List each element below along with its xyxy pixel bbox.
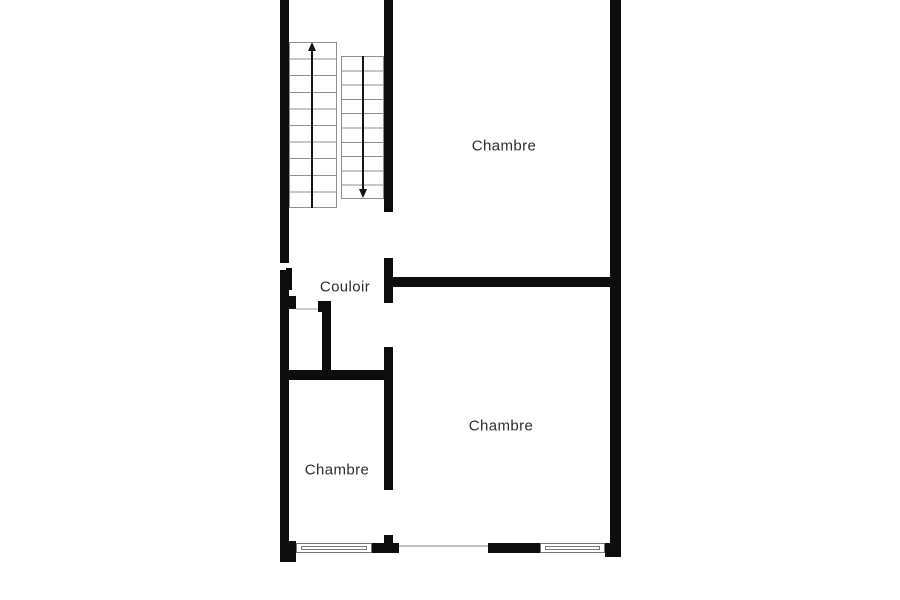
wall-couloir-bottom	[280, 370, 393, 380]
stairs-up-direction-line	[311, 50, 313, 208]
wall-left-upper	[280, 0, 289, 263]
wall-left-lower	[280, 270, 289, 543]
couloir-door-opening-line	[296, 308, 318, 310]
wall-middle-upper	[384, 0, 393, 212]
floor-plan: Chambre Couloir Chambre Chambre	[0, 0, 900, 600]
room-label-chambre-bottom-left: Chambre	[305, 462, 370, 479]
stairs-up-arrow-icon	[308, 42, 316, 51]
stairs-down-arrow-icon	[359, 189, 367, 198]
bottom-opening-line	[399, 545, 488, 547]
wall-left-jamb-block	[287, 296, 296, 309]
wall-divider-horizontal	[384, 277, 621, 287]
wall-middle-lower	[384, 347, 393, 490]
window-bottom-right	[540, 543, 605, 553]
corner-bottom-left	[280, 541, 296, 562]
wall-bottom-mid-segment	[488, 543, 540, 553]
corner-bottom-right	[605, 543, 621, 557]
room-label-chambre-top: Chambre	[472, 138, 537, 155]
staircase-flight-up	[289, 42, 337, 208]
room-label-couloir: Couloir	[320, 279, 370, 296]
wall-left-door-jamb	[286, 268, 292, 290]
wall-couloir-inner	[322, 301, 331, 375]
window-bottom-left	[296, 543, 372, 553]
stairs-down-direction-line	[362, 56, 364, 190]
window-pane	[545, 546, 600, 550]
wall-bottom-left-segment	[372, 543, 399, 553]
window-pane	[301, 546, 367, 550]
wall-couloir-inner-stub	[318, 301, 331, 312]
room-label-chambre-middle: Chambre	[469, 418, 534, 435]
